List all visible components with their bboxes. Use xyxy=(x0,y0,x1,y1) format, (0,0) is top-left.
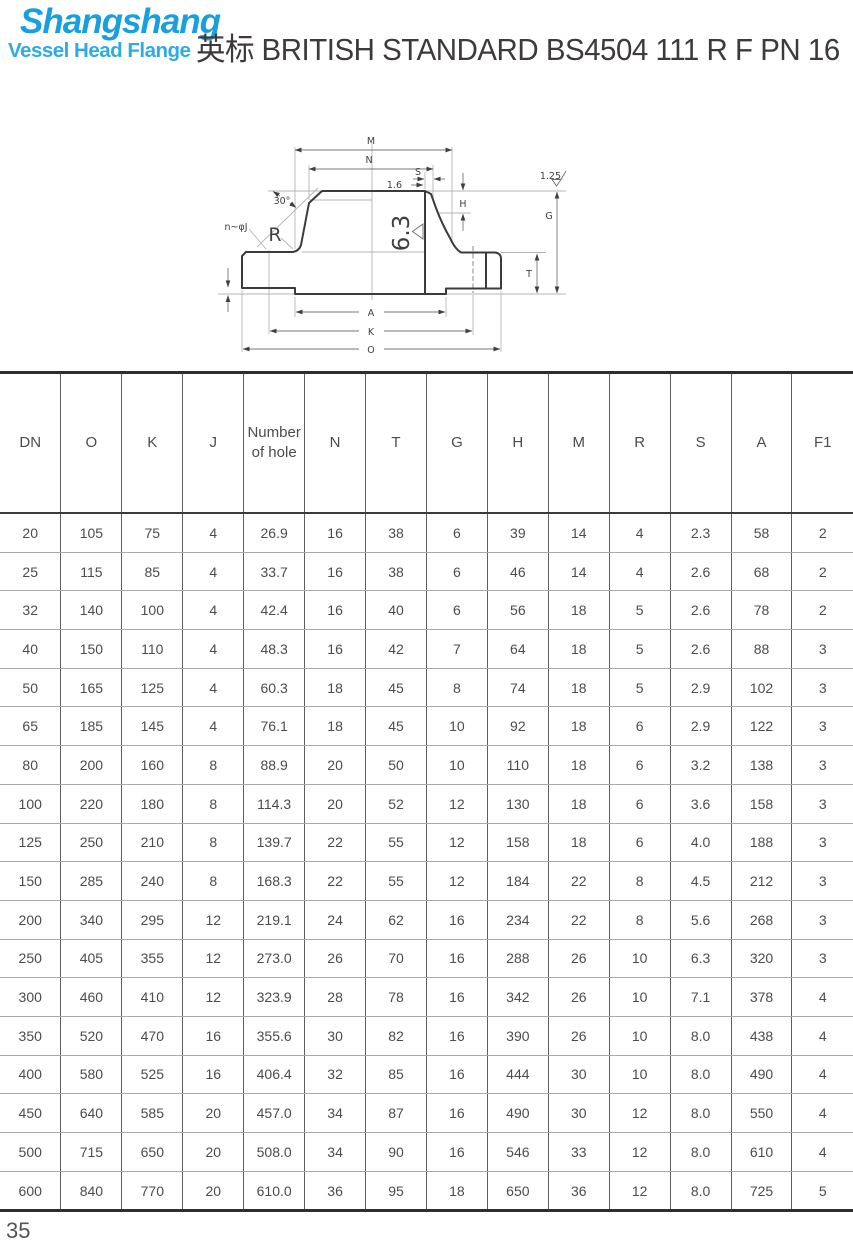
column-header: G xyxy=(426,374,487,513)
table-cell: 16 xyxy=(183,1055,244,1094)
dim-label-radius: R xyxy=(268,224,281,246)
table-cell: 10 xyxy=(609,939,670,978)
table-cell: 158 xyxy=(731,784,792,823)
table-cell: 85 xyxy=(122,552,183,591)
column-header: DN xyxy=(0,374,61,513)
table-cell: 110 xyxy=(122,630,183,669)
page-title-chinese: 英标 xyxy=(196,32,254,67)
table-cell: 24 xyxy=(305,900,366,939)
table-cell: 4 xyxy=(183,630,244,669)
table-cell: 150 xyxy=(61,630,122,669)
table-cell: 30 xyxy=(548,1094,609,1133)
table-cell: 410 xyxy=(122,978,183,1017)
table-cell: 3 xyxy=(792,668,853,707)
table-cell: 300 xyxy=(0,978,61,1017)
table-cell: 22 xyxy=(548,900,609,939)
table-cell: 550 xyxy=(731,1094,792,1133)
table-cell: 40 xyxy=(0,630,61,669)
table-cell: 250 xyxy=(0,939,61,978)
table-row: 1002201808114.32052121301863.61583 xyxy=(0,784,853,823)
table-cell: 75 xyxy=(122,513,183,552)
table-cell: 140 xyxy=(61,591,122,630)
table-cell: 8.0 xyxy=(670,1133,731,1172)
dim-label-k: K xyxy=(368,327,375,338)
table-cell: 4.5 xyxy=(670,862,731,901)
table-cell: 150 xyxy=(0,862,61,901)
table-cell: 82 xyxy=(366,1016,427,1055)
table-cell: 240 xyxy=(122,862,183,901)
table-cell: 122 xyxy=(731,707,792,746)
table-cell: 16 xyxy=(305,630,366,669)
table-cell: 355.6 xyxy=(244,1016,305,1055)
table-cell: 28 xyxy=(305,978,366,1017)
table-cell: 650 xyxy=(487,1171,548,1209)
table-cell: 6 xyxy=(609,746,670,785)
table-cell: 18 xyxy=(305,707,366,746)
table-cell: 18 xyxy=(548,668,609,707)
table-cell: 12 xyxy=(609,1094,670,1133)
flange-dimension-table: DNOKJNumber of holeNTGHMRSAF1 2010575426… xyxy=(0,374,853,1209)
table-cell: 355 xyxy=(122,939,183,978)
column-header: A xyxy=(731,374,792,513)
column-header: Number of hole xyxy=(244,374,305,513)
table-cell: 16 xyxy=(305,513,366,552)
table-cell: 8.0 xyxy=(670,1171,731,1209)
table-cell: 400 xyxy=(0,1055,61,1094)
table-cell: 2.9 xyxy=(670,707,731,746)
table-cell: 12 xyxy=(426,862,487,901)
table-cell: 16 xyxy=(426,1094,487,1133)
table-cell: 115 xyxy=(61,552,122,591)
table-cell: 20 xyxy=(183,1133,244,1172)
table-cell: 525 xyxy=(122,1055,183,1094)
table-cell: 85 xyxy=(366,1055,427,1094)
table-cell: 30 xyxy=(305,1016,366,1055)
table-cell: 4 xyxy=(792,1133,853,1172)
table-row: 50071565020508.034901654633128.06104 xyxy=(0,1133,853,1172)
table-cell: 295 xyxy=(122,900,183,939)
table-row: 1252502108139.72255121581864.01883 xyxy=(0,823,853,862)
table-cell: 8.0 xyxy=(670,1016,731,1055)
table-cell: 2 xyxy=(792,591,853,630)
table-cell: 32 xyxy=(305,1055,366,1094)
page-title-english: BRITISH STANDARD BS4504 111 R F PN 16 xyxy=(262,32,840,67)
table-cell: 2.6 xyxy=(670,552,731,591)
table-row: 65185145476.1184510921862.91223 xyxy=(0,707,853,746)
table-cell: 4 xyxy=(792,1055,853,1094)
table-cell: 36 xyxy=(548,1171,609,1209)
table-cell: 12 xyxy=(609,1171,670,1209)
table-cell: 70 xyxy=(366,939,427,978)
table-cell: 5 xyxy=(792,1171,853,1209)
table-cell: 26 xyxy=(548,1016,609,1055)
table-cell: 48.3 xyxy=(244,630,305,669)
dim-label-angle: 30° xyxy=(274,196,291,207)
table-cell: 95 xyxy=(366,1171,427,1209)
table-cell: 610 xyxy=(731,1133,792,1172)
table-cell: 4 xyxy=(792,1094,853,1133)
table-cell: 2.6 xyxy=(670,630,731,669)
table-cell: 18 xyxy=(548,746,609,785)
table-cell: 3 xyxy=(792,746,853,785)
table-cell: 158 xyxy=(487,823,548,862)
dim-label-o: O xyxy=(367,345,374,356)
table-cell: 490 xyxy=(731,1055,792,1094)
table-cell: 770 xyxy=(122,1171,183,1209)
table-cell: 342 xyxy=(487,978,548,1017)
table-cell: 45 xyxy=(366,668,427,707)
table-cell: 12 xyxy=(426,784,487,823)
table-cell: 184 xyxy=(487,862,548,901)
brand-name: Shangshang xyxy=(20,4,198,40)
table-cell: 74 xyxy=(487,668,548,707)
dim-label-s: S xyxy=(415,167,421,178)
table-cell: 8.0 xyxy=(670,1055,731,1094)
spec-table-container: DNOKJNumber of holeNTGHMRSAF1 2010575426… xyxy=(0,371,853,1212)
table-cell: 18 xyxy=(548,707,609,746)
table-cell: 88.9 xyxy=(244,746,305,785)
dim-label-n: N xyxy=(365,155,372,166)
table-cell: 20 xyxy=(183,1171,244,1209)
table-cell: 12 xyxy=(183,978,244,1017)
table-cell: 10 xyxy=(426,746,487,785)
table-cell: 500 xyxy=(0,1133,61,1172)
table-row: 50165125460.318458741852.91023 xyxy=(0,668,853,707)
table-cell: 25 xyxy=(0,552,61,591)
table-cell: 18 xyxy=(426,1171,487,1209)
column-header: T xyxy=(366,374,427,513)
table-cell: 460 xyxy=(61,978,122,1017)
table-cell: 219.1 xyxy=(244,900,305,939)
table-cell: 65 xyxy=(0,707,61,746)
table-cell: 6 xyxy=(426,513,487,552)
dim-label-t: T xyxy=(525,269,532,280)
table-cell: 16 xyxy=(426,1016,487,1055)
table-cell: 640 xyxy=(61,1094,122,1133)
table-cell: 546 xyxy=(487,1133,548,1172)
table-cell: 60.3 xyxy=(244,668,305,707)
table-cell: 188 xyxy=(731,823,792,862)
table-cell: 16 xyxy=(305,591,366,630)
table-cell: 26 xyxy=(305,939,366,978)
table-cell: 610.0 xyxy=(244,1171,305,1209)
table-row: 80200160888.92050101101863.21383 xyxy=(0,746,853,785)
table-cell: 520 xyxy=(61,1016,122,1055)
page-title: 英标BRITISH STANDARD BS4504 111 R F PN 16 xyxy=(196,24,840,69)
table-cell: 39 xyxy=(487,513,548,552)
table-cell: 10 xyxy=(609,1016,670,1055)
roughness-value-side: 6.3 xyxy=(389,215,415,252)
column-header: F1 xyxy=(792,374,853,513)
table-cell: 26.9 xyxy=(244,513,305,552)
table-cell: 62 xyxy=(366,900,427,939)
table-cell: 457.0 xyxy=(244,1094,305,1133)
table-cell: 12 xyxy=(426,823,487,862)
table-cell: 45 xyxy=(366,707,427,746)
table-cell: 90 xyxy=(366,1133,427,1172)
table-cell: 16 xyxy=(183,1016,244,1055)
table-cell: 16 xyxy=(426,1133,487,1172)
table-cell: 100 xyxy=(122,591,183,630)
table-cell: 87 xyxy=(366,1094,427,1133)
table-cell: 34 xyxy=(305,1094,366,1133)
table-cell: 340 xyxy=(61,900,122,939)
dim-label-h: H xyxy=(459,199,466,210)
table-cell: 55 xyxy=(366,823,427,862)
table-cell: 580 xyxy=(61,1055,122,1094)
table-cell: 20 xyxy=(183,1094,244,1133)
table-cell: 165 xyxy=(61,668,122,707)
table-cell: 110 xyxy=(487,746,548,785)
table-cell: 5 xyxy=(609,630,670,669)
table-cell: 8 xyxy=(609,862,670,901)
table-cell: 50 xyxy=(0,668,61,707)
table-cell: 3 xyxy=(792,784,853,823)
table-cell: 145 xyxy=(122,707,183,746)
table-header-row: DNOKJNumber of holeNTGHMRSAF1 xyxy=(0,374,853,513)
table-row: 40150110448.316427641852.6883 xyxy=(0,630,853,669)
table-cell: 4 xyxy=(183,668,244,707)
table-cell: 3 xyxy=(792,823,853,862)
table-cell: 18 xyxy=(548,630,609,669)
table-cell: 3 xyxy=(792,707,853,746)
table-cell: 3 xyxy=(792,630,853,669)
dim-label-bolt-holes: n~φJ xyxy=(224,222,247,233)
table-cell: 650 xyxy=(122,1133,183,1172)
table-cell: 234 xyxy=(487,900,548,939)
table-cell: 33.7 xyxy=(244,552,305,591)
table-cell: 4 xyxy=(183,591,244,630)
table-cell: 56 xyxy=(487,591,548,630)
table-cell: 130 xyxy=(487,784,548,823)
table-cell: 212 xyxy=(731,862,792,901)
table-cell: 68 xyxy=(731,552,792,591)
table-cell: 138 xyxy=(731,746,792,785)
table-cell: 220 xyxy=(61,784,122,823)
flange-section-drawing: M N S 1.6 H G T A K O 30° n~φJ R 6.3 1.2… xyxy=(185,120,665,370)
column-header: R xyxy=(609,374,670,513)
table-cell: 3.6 xyxy=(670,784,731,823)
table-cell: 4.0 xyxy=(670,823,731,862)
roughness-value-top: 1.25 xyxy=(540,171,561,182)
table-cell: 55 xyxy=(366,862,427,901)
table-cell: 4 xyxy=(609,513,670,552)
table-cell: 58 xyxy=(731,513,792,552)
table-cell: 125 xyxy=(0,823,61,862)
table-cell: 10 xyxy=(609,978,670,1017)
table-cell: 26 xyxy=(548,939,609,978)
table-cell: 490 xyxy=(487,1094,548,1133)
table-cell: 840 xyxy=(61,1171,122,1209)
table-row: 1502852408168.32255121842284.52123 xyxy=(0,862,853,901)
table-cell: 92 xyxy=(487,707,548,746)
table-cell: 76.1 xyxy=(244,707,305,746)
table-cell: 22 xyxy=(305,823,366,862)
table-cell: 444 xyxy=(487,1055,548,1094)
table-cell: 40 xyxy=(366,591,427,630)
table-cell: 22 xyxy=(305,862,366,901)
table-cell: 42 xyxy=(366,630,427,669)
table-cell: 20 xyxy=(305,746,366,785)
table-cell: 8 xyxy=(183,823,244,862)
table-cell: 114.3 xyxy=(244,784,305,823)
table-cell: 200 xyxy=(61,746,122,785)
table-cell: 14 xyxy=(548,552,609,591)
table-cell: 438 xyxy=(731,1016,792,1055)
table-cell: 168.3 xyxy=(244,862,305,901)
brand-tagline: Vessel Head Flange xyxy=(8,40,198,61)
table-cell: 14 xyxy=(548,513,609,552)
table-cell: 8.0 xyxy=(670,1094,731,1133)
table-row: 25040535512273.026701628826106.33203 xyxy=(0,939,853,978)
table-cell: 20 xyxy=(305,784,366,823)
table-cell: 10 xyxy=(609,1055,670,1094)
table-cell: 4 xyxy=(183,707,244,746)
table-cell: 6 xyxy=(426,552,487,591)
table-cell: 8 xyxy=(426,668,487,707)
table-cell: 12 xyxy=(609,1133,670,1172)
page-number: 35 xyxy=(6,1218,30,1244)
table-cell: 12 xyxy=(183,939,244,978)
table-cell: 125 xyxy=(122,668,183,707)
table-row: 40058052516406.432851644430108.04904 xyxy=(0,1055,853,1094)
table-cell: 3 xyxy=(792,862,853,901)
table-cell: 725 xyxy=(731,1171,792,1209)
table-cell: 4 xyxy=(792,1016,853,1055)
table-cell: 585 xyxy=(122,1094,183,1133)
table-row: 32140100442.416406561852.6782 xyxy=(0,591,853,630)
table-row: 60084077020610.036951865036128.07255 xyxy=(0,1171,853,1209)
table-cell: 4 xyxy=(183,552,244,591)
table-cell: 470 xyxy=(122,1016,183,1055)
table-cell: 38 xyxy=(366,552,427,591)
table-cell: 102 xyxy=(731,668,792,707)
table-cell: 100 xyxy=(0,784,61,823)
table-cell: 378 xyxy=(731,978,792,1017)
table-cell: 715 xyxy=(61,1133,122,1172)
table-cell: 450 xyxy=(0,1094,61,1133)
column-header: O xyxy=(61,374,122,513)
table-cell: 18 xyxy=(548,784,609,823)
table-cell: 64 xyxy=(487,630,548,669)
table-cell: 22 xyxy=(548,862,609,901)
table-cell: 6 xyxy=(426,591,487,630)
table-cell: 34 xyxy=(305,1133,366,1172)
table-cell: 210 xyxy=(122,823,183,862)
table-cell: 180 xyxy=(122,784,183,823)
table-cell: 80 xyxy=(0,746,61,785)
table-row: 30046041012323.928781634226107.13784 xyxy=(0,978,853,1017)
table-cell: 4 xyxy=(609,552,670,591)
table-cell: 5 xyxy=(609,668,670,707)
table-cell: 26 xyxy=(548,978,609,1017)
table-cell: 30 xyxy=(548,1055,609,1094)
catalog-page: { "header": { "logo_line1": "Shangshang"… xyxy=(0,0,853,1252)
table-row: 2511585433.716386461442.6682 xyxy=(0,552,853,591)
table-cell: 78 xyxy=(731,591,792,630)
column-header: M xyxy=(548,374,609,513)
table-cell: 4 xyxy=(792,978,853,1017)
table-cell: 8 xyxy=(183,862,244,901)
table-cell: 250 xyxy=(61,823,122,862)
table-cell: 18 xyxy=(548,823,609,862)
table-row: 2010575426.916386391442.3582 xyxy=(0,513,853,552)
table-cell: 33 xyxy=(548,1133,609,1172)
table-cell: 8 xyxy=(609,900,670,939)
table-cell: 16 xyxy=(426,1055,487,1094)
table-cell: 3.2 xyxy=(670,746,731,785)
table-cell: 8 xyxy=(183,784,244,823)
table-cell: 405 xyxy=(61,939,122,978)
table-cell: 600 xyxy=(0,1171,61,1209)
table-cell: 2.6 xyxy=(670,591,731,630)
dim-label-a: A xyxy=(368,308,375,319)
table-body: 2010575426.916386391442.35822511585433.7… xyxy=(0,513,853,1209)
table-cell: 139.7 xyxy=(244,823,305,862)
table-cell: 12 xyxy=(183,900,244,939)
brand-logo: Shangshang Vessel Head Flange xyxy=(8,4,198,61)
dim-label-roughness-face: 1.6 xyxy=(387,180,402,191)
column-header: N xyxy=(305,374,366,513)
table-cell: 8 xyxy=(183,746,244,785)
table-cell: 50 xyxy=(366,746,427,785)
table-cell: 3 xyxy=(792,939,853,978)
table-cell: 16 xyxy=(426,900,487,939)
table-cell: 7.1 xyxy=(670,978,731,1017)
table-cell: 42.4 xyxy=(244,591,305,630)
table-cell: 105 xyxy=(61,513,122,552)
table-cell: 508.0 xyxy=(244,1133,305,1172)
table-cell: 5.6 xyxy=(670,900,731,939)
table-cell: 7 xyxy=(426,630,487,669)
column-header: H xyxy=(487,374,548,513)
column-header: S xyxy=(670,374,731,513)
table-cell: 16 xyxy=(426,978,487,1017)
table-cell: 390 xyxy=(487,1016,548,1055)
table-cell: 18 xyxy=(548,591,609,630)
table-cell: 3 xyxy=(792,900,853,939)
table-cell: 350 xyxy=(0,1016,61,1055)
table-cell: 285 xyxy=(61,862,122,901)
table-cell: 2 xyxy=(792,513,853,552)
table-cell: 6 xyxy=(609,707,670,746)
table-cell: 10 xyxy=(426,707,487,746)
column-header: J xyxy=(183,374,244,513)
table-row: 35052047016355.630821639026108.04384 xyxy=(0,1016,853,1055)
table-cell: 78 xyxy=(366,978,427,1017)
table-cell: 36 xyxy=(305,1171,366,1209)
table-cell: 20 xyxy=(0,513,61,552)
table-cell: 2.3 xyxy=(670,513,731,552)
table-cell: 38 xyxy=(366,513,427,552)
table-cell: 5 xyxy=(609,591,670,630)
table-cell: 2.9 xyxy=(670,668,731,707)
column-header: K xyxy=(122,374,183,513)
table-cell: 323.9 xyxy=(244,978,305,1017)
table-cell: 18 xyxy=(305,668,366,707)
table-cell: 185 xyxy=(61,707,122,746)
table-cell: 4 xyxy=(183,513,244,552)
table-cell: 2 xyxy=(792,552,853,591)
table-row: 20034029512219.12462162342285.62683 xyxy=(0,900,853,939)
table-row: 45064058520457.034871649030128.05504 xyxy=(0,1094,853,1133)
table-cell: 46 xyxy=(487,552,548,591)
table-cell: 6 xyxy=(609,823,670,862)
table-cell: 6.3 xyxy=(670,939,731,978)
table-cell: 320 xyxy=(731,939,792,978)
table-cell: 273.0 xyxy=(244,939,305,978)
table-cell: 16 xyxy=(426,939,487,978)
